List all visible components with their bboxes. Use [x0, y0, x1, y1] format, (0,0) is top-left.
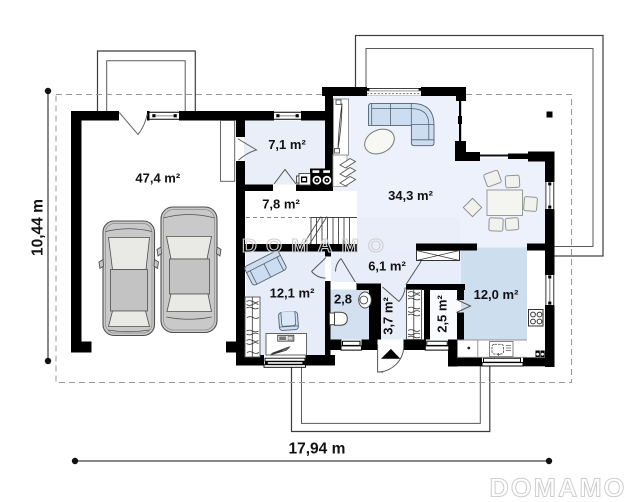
- svg-text:47,4 m²: 47,4 m²: [135, 171, 180, 186]
- svg-text:7,1 m²: 7,1 m²: [268, 137, 306, 152]
- svg-text:2,8: 2,8: [334, 292, 352, 307]
- svg-text:7,8 m²: 7,8 m²: [262, 197, 300, 212]
- svg-text:12,0 m²: 12,0 m²: [474, 287, 519, 302]
- svg-text:6,1 m²: 6,1 m²: [368, 258, 406, 273]
- svg-text:DOMAMO: DOMAMO: [490, 473, 627, 502]
- svg-text:17,94 m: 17,94 m: [289, 441, 346, 458]
- svg-text:12,1 m²: 12,1 m²: [270, 285, 315, 300]
- svg-text:2,5 m²: 2,5 m²: [435, 295, 450, 333]
- svg-text:3,7 m²: 3,7 m²: [381, 297, 396, 335]
- svg-text:DOMAMO: DOMAMO: [242, 236, 393, 256]
- svg-text:10,44 m: 10,44 m: [30, 199, 47, 256]
- svg-text:34,3 m²: 34,3 m²: [388, 188, 433, 203]
